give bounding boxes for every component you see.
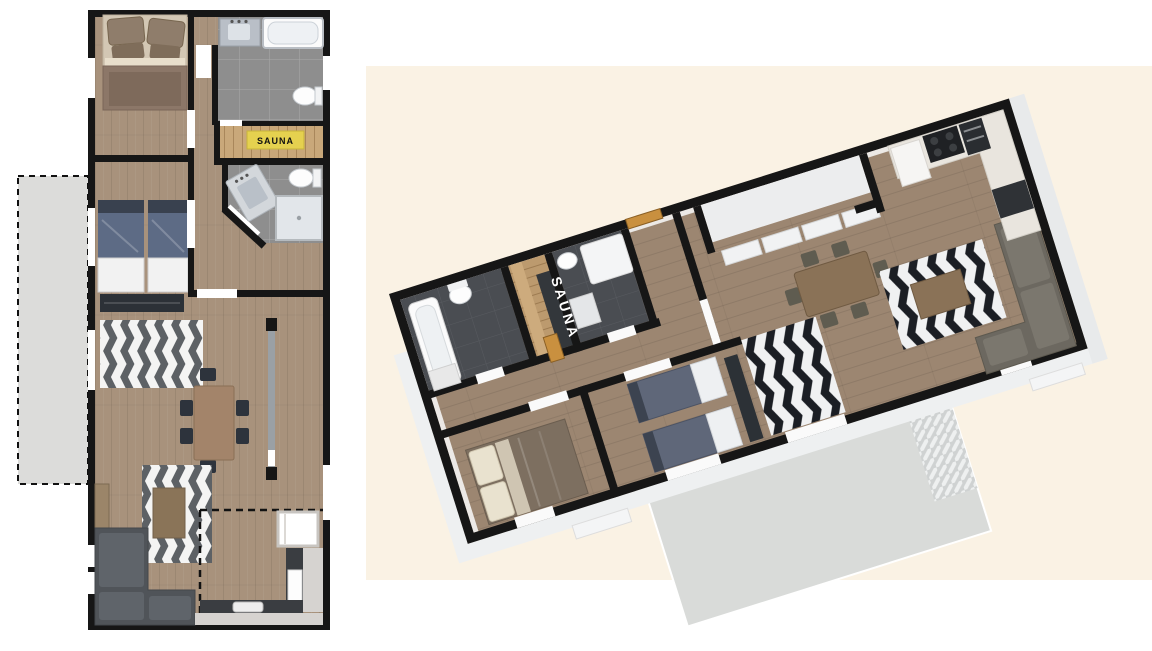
toilet-2d [293, 87, 317, 105]
pillow [107, 16, 145, 45]
sink [228, 24, 250, 40]
floor-plan-2d-view[interactable]: SAUNA [18, 10, 330, 630]
toilet-tank [315, 87, 322, 105]
sauna-2d: SAUNA [214, 120, 330, 165]
door-gap [187, 110, 195, 148]
patio-2d [18, 176, 88, 484]
door-gap [187, 200, 195, 248]
pillow [147, 18, 186, 48]
duvet-fold [109, 72, 181, 106]
coffee-table-2d [153, 488, 185, 538]
floor-plan-svg: SAUNA [0, 0, 1152, 651]
dining-table-2d [194, 386, 234, 460]
master-bedroom-2d [103, 15, 187, 110]
toilet2-2d [289, 169, 313, 187]
bathtub-inner [268, 22, 318, 44]
sauna-text-2d: SAUNA [257, 136, 294, 146]
wall [214, 158, 330, 165]
twin-bed-1 [98, 200, 144, 292]
wall [212, 45, 218, 125]
wall [222, 165, 228, 211]
floor-plan-canvas: SAUNA [0, 0, 1152, 651]
side-table-2d [95, 484, 109, 532]
toilet2-tank [313, 169, 321, 187]
dishwasher-2d [288, 570, 302, 602]
twin-bedroom-2d [98, 200, 188, 312]
chevron-rug-1-2d [100, 320, 203, 388]
door-gap [220, 120, 242, 126]
door-gap [197, 289, 237, 298]
door-gap [196, 45, 211, 78]
sink-2d [233, 602, 263, 612]
counter-light-bottom [195, 613, 323, 625]
twin-bed-2 [148, 200, 188, 292]
bed-foot [98, 258, 144, 292]
wall [95, 155, 194, 162]
bed-foot [148, 258, 188, 292]
